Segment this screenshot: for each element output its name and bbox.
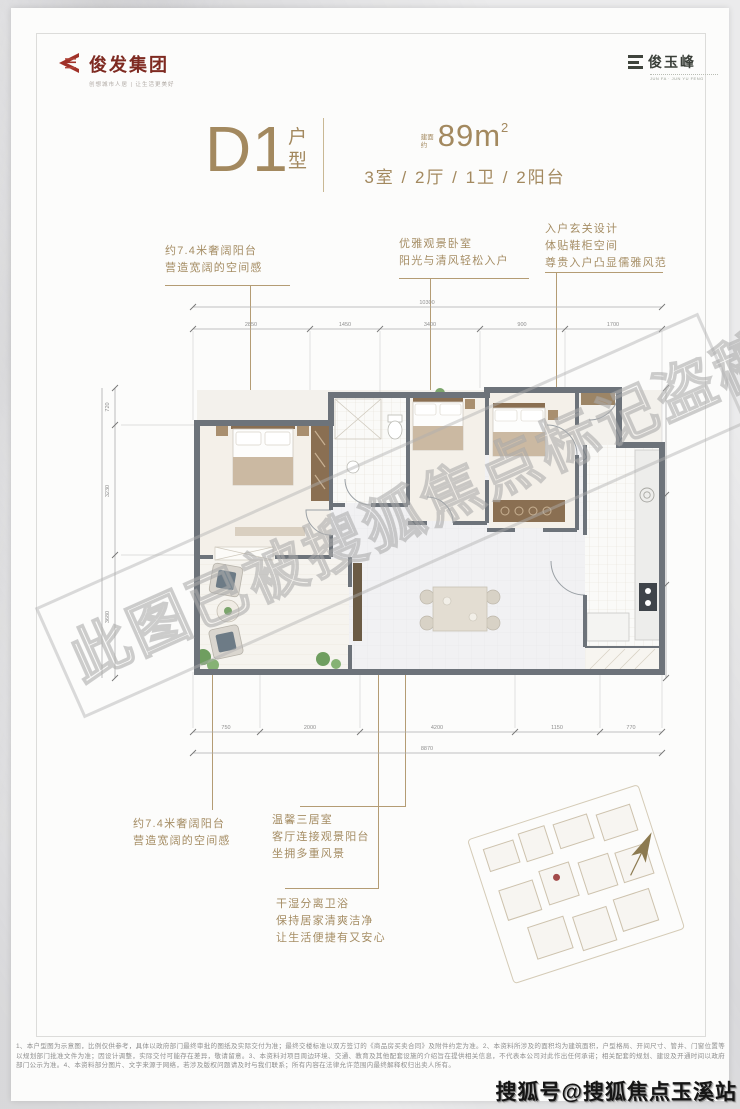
callout-bedroom: 优雅观景卧室阳光与清风轻松入户 [399, 236, 509, 270]
area-superscript: 2 [501, 120, 509, 135]
callout-balcony-top: 约7.4米奢阔阳台营造宽阔的空间感 [165, 243, 263, 277]
svg-text:1450: 1450 [339, 322, 351, 328]
svg-text:3230: 3230 [105, 485, 111, 497]
area-value: 89m2 [438, 118, 510, 154]
service-balcony [586, 648, 661, 670]
svg-text:8870: 8870 [421, 746, 433, 752]
brand-junfa-tagline: 创想城市人居 | 让生活更美好 [89, 80, 272, 88]
unit-layout: 3室 / 2厅 / 1卫 / 2阳台 [345, 163, 585, 188]
brand-junyufeng: 俊玉峰 JUN FA · JUN YU FENG [628, 52, 718, 81]
compass-north-icon [620, 828, 664, 884]
brand-junyufeng-name: 俊玉峰 [648, 52, 696, 72]
svg-text:750: 750 [221, 725, 230, 731]
callout-bathroom: 干湿分离卫浴保持居家清爽洁净让生活便捷有又安心 [276, 896, 386, 947]
svg-text:3400: 3400 [424, 322, 436, 328]
leader-line [545, 272, 663, 273]
svg-text:2850: 2850 [245, 322, 257, 328]
junfa-logo-icon [52, 50, 82, 78]
svg-text:1150: 1150 [551, 725, 563, 731]
brand-junfa-name: 俊发集团 [89, 51, 169, 77]
svg-text:720: 720 [105, 402, 111, 411]
svg-text:900: 900 [517, 322, 526, 328]
title-divider [323, 118, 324, 192]
leader-line [300, 806, 406, 807]
area-prefix: 建面约 [421, 134, 436, 150]
brand-junyufeng-tagline: JUN FA · JUN YU FENG [650, 74, 718, 81]
callout-livingroom: 温馨三居室客厅连接观景阳台坐拥多重风景 [272, 812, 370, 863]
callout-balcony-bottom: 约7.4米奢阔阳台营造宽阔的空间感 [133, 816, 231, 850]
svg-text:10300: 10300 [419, 300, 434, 306]
unit-spec: 建面约 89m2 3室 / 2厅 / 1卫 / 2阳台 [345, 118, 585, 188]
leader-line [285, 888, 379, 889]
sohu-watermark: 搜狐号@搜狐焦点玉溪站 [496, 1076, 737, 1106]
svg-text:1700: 1700 [607, 322, 619, 328]
junyufeng-logo-icon [628, 55, 643, 69]
legal-disclaimer: 1、本户型图为示意图，比例仅供参考，具体以政府部门最终审批的图纸及实际交付为准；… [16, 1042, 725, 1071]
unit-code-suffix: 户型 [288, 126, 312, 174]
svg-text:770: 770 [626, 725, 635, 731]
svg-text:2000: 2000 [304, 725, 316, 731]
leader-line [399, 278, 529, 279]
callout-foyer: 入户玄关设计体贴鞋柜空间尊贵入户凸显儒雅风范 [545, 221, 667, 272]
unit-code: D1 [205, 112, 289, 186]
svg-text:4200: 4200 [431, 725, 443, 731]
brand-junfa: 俊发集团 创想城市人居 | 让生活更美好 [52, 50, 272, 88]
leader-line [165, 285, 290, 286]
